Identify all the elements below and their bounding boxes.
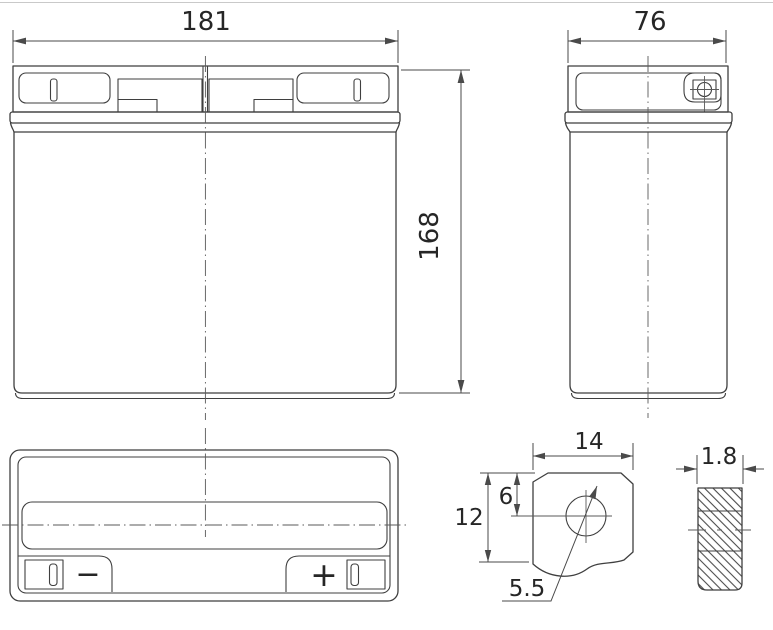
arrowhead (621, 453, 633, 459)
front-view: 181 168 (10, 7, 470, 420)
top-view: − + (2, 428, 409, 601)
lid-left-pad (19, 73, 110, 103)
arrowhead (514, 473, 520, 485)
top-outer-outline (10, 450, 398, 601)
section-hatch-bottom (698, 551, 742, 590)
terminal-height-dimension: 12 (454, 473, 529, 562)
side-body (570, 132, 727, 399)
top-positive-terminal-region (286, 556, 390, 592)
dimension-label-76: 76 (633, 7, 666, 37)
drawing-svg: 181 168 (0, 0, 773, 630)
arrowhead (458, 380, 465, 393)
arrowhead (533, 453, 545, 459)
arrowhead (713, 38, 726, 45)
terminal-width-dimension: 14 (533, 429, 633, 470)
lid-right-pad (297, 73, 389, 103)
section-thickness-dimension: 1.8 (676, 444, 764, 484)
arrowhead (568, 38, 581, 45)
section-hatch-top (698, 488, 742, 551)
side-lid-band (565, 112, 732, 132)
lid-center-left-panel (118, 79, 202, 112)
side-terminal-crosshair (690, 76, 719, 112)
arrowhead (743, 466, 756, 473)
arrowhead (684, 466, 697, 473)
arrowhead (458, 70, 465, 83)
arrowhead (13, 38, 26, 45)
front-height-dimension: 168 (399, 70, 470, 393)
lid-center-left-step (118, 100, 157, 113)
dimension-label-5.5: 5.5 (509, 576, 546, 602)
positive-terminal-symbol: + (310, 555, 338, 594)
arrowhead (385, 38, 398, 45)
positive-terminal-slot (351, 564, 359, 586)
lid-right-vent-slot (354, 79, 361, 101)
arrowhead (485, 473, 491, 485)
dimension-label-12: 12 (454, 505, 483, 531)
dimension-label-168: 168 (415, 211, 445, 261)
dimension-label-181: 181 (181, 7, 231, 37)
side-width-dimension: 76 (568, 7, 726, 63)
battery-dimension-drawing: 181 168 (0, 0, 773, 630)
arrowhead (589, 486, 597, 499)
negative-terminal-symbol: − (75, 557, 100, 592)
dimension-label-6: 6 (499, 484, 514, 510)
top-center-band (22, 502, 387, 549)
terminal-hole-diameter-leader: 5.5 (502, 486, 597, 602)
side-lid-pad (576, 73, 721, 110)
dimension-label-14: 14 (574, 429, 603, 455)
lid-left-vent-slot (51, 79, 58, 101)
lid-center-right-panel (209, 79, 293, 112)
terminal-section-view: 1.8 (676, 444, 764, 590)
front-width-dimension: 181 (13, 7, 398, 63)
lid-center-right-step (254, 100, 293, 113)
dimension-label-1.8: 1.8 (701, 444, 738, 470)
arrowhead (485, 550, 491, 562)
terminal-plate-outline (533, 473, 633, 576)
side-view: 76 (565, 7, 732, 418)
arrowhead (514, 504, 520, 516)
side-base-line (572, 393, 726, 399)
negative-terminal-slot (50, 564, 58, 586)
terminal-detail-view: 14 6 12 (454, 429, 633, 602)
